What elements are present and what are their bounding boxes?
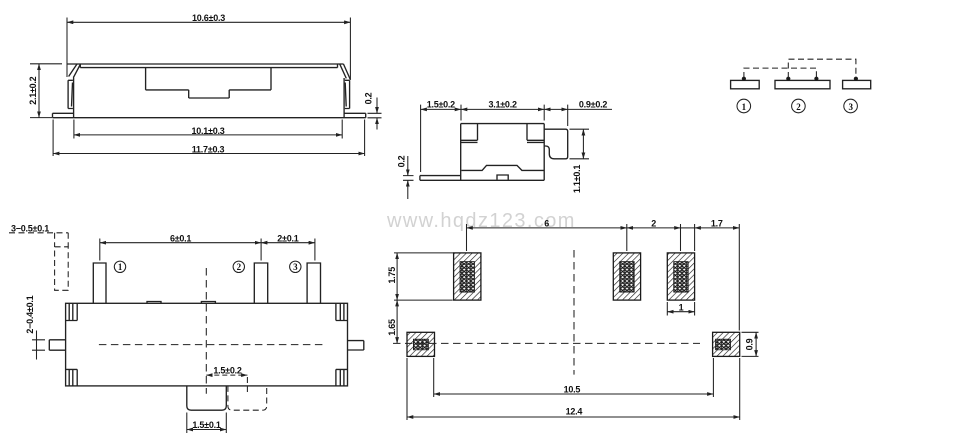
svg-text:0.9±0.2: 0.9±0.2 [579, 100, 607, 110]
svg-text:10.6±0.3: 10.6±0.3 [192, 13, 225, 23]
svg-text:3: 3 [293, 262, 298, 272]
svg-text:2.1±0.2: 2.1±0.2 [28, 76, 38, 104]
svg-text:10.1±0.3: 10.1±0.3 [192, 126, 225, 136]
svg-text:6±0.1: 6±0.1 [170, 234, 191, 244]
svg-text:1.5±0.2: 1.5±0.2 [213, 366, 241, 376]
svg-text:2: 2 [237, 262, 242, 272]
svg-text:2: 2 [651, 219, 656, 229]
svg-text:3.1±0.2: 3.1±0.2 [488, 100, 516, 110]
svg-text:2±0.1: 2±0.1 [277, 234, 298, 244]
svg-text:1: 1 [118, 262, 123, 272]
svg-text:3−0.5±0.1: 3−0.5±0.1 [11, 224, 49, 234]
svg-text:1.65: 1.65 [387, 319, 397, 336]
svg-text:3: 3 [848, 102, 853, 112]
svg-text:1.5±0.1: 1.5±0.1 [192, 420, 220, 430]
svg-text:1.1±0.1: 1.1±0.1 [572, 165, 582, 193]
svg-text:1.75: 1.75 [387, 267, 397, 284]
svg-text:1: 1 [679, 303, 684, 313]
svg-text:1.5±0.2: 1.5±0.2 [427, 100, 455, 110]
svg-text:0.9: 0.9 [744, 338, 754, 350]
svg-text:1: 1 [742, 102, 747, 112]
svg-text:6: 6 [544, 219, 549, 229]
svg-text:10.5: 10.5 [564, 385, 581, 395]
svg-text:2: 2 [796, 102, 801, 112]
svg-text:0.2: 0.2 [364, 92, 374, 104]
svg-text:12.4: 12.4 [566, 406, 583, 416]
svg-text:1.7: 1.7 [711, 219, 723, 229]
svg-text:0.2: 0.2 [397, 155, 407, 167]
svg-text:11.7±0.3: 11.7±0.3 [192, 144, 225, 154]
svg-text:2−0.4±0.1: 2−0.4±0.1 [25, 295, 35, 333]
